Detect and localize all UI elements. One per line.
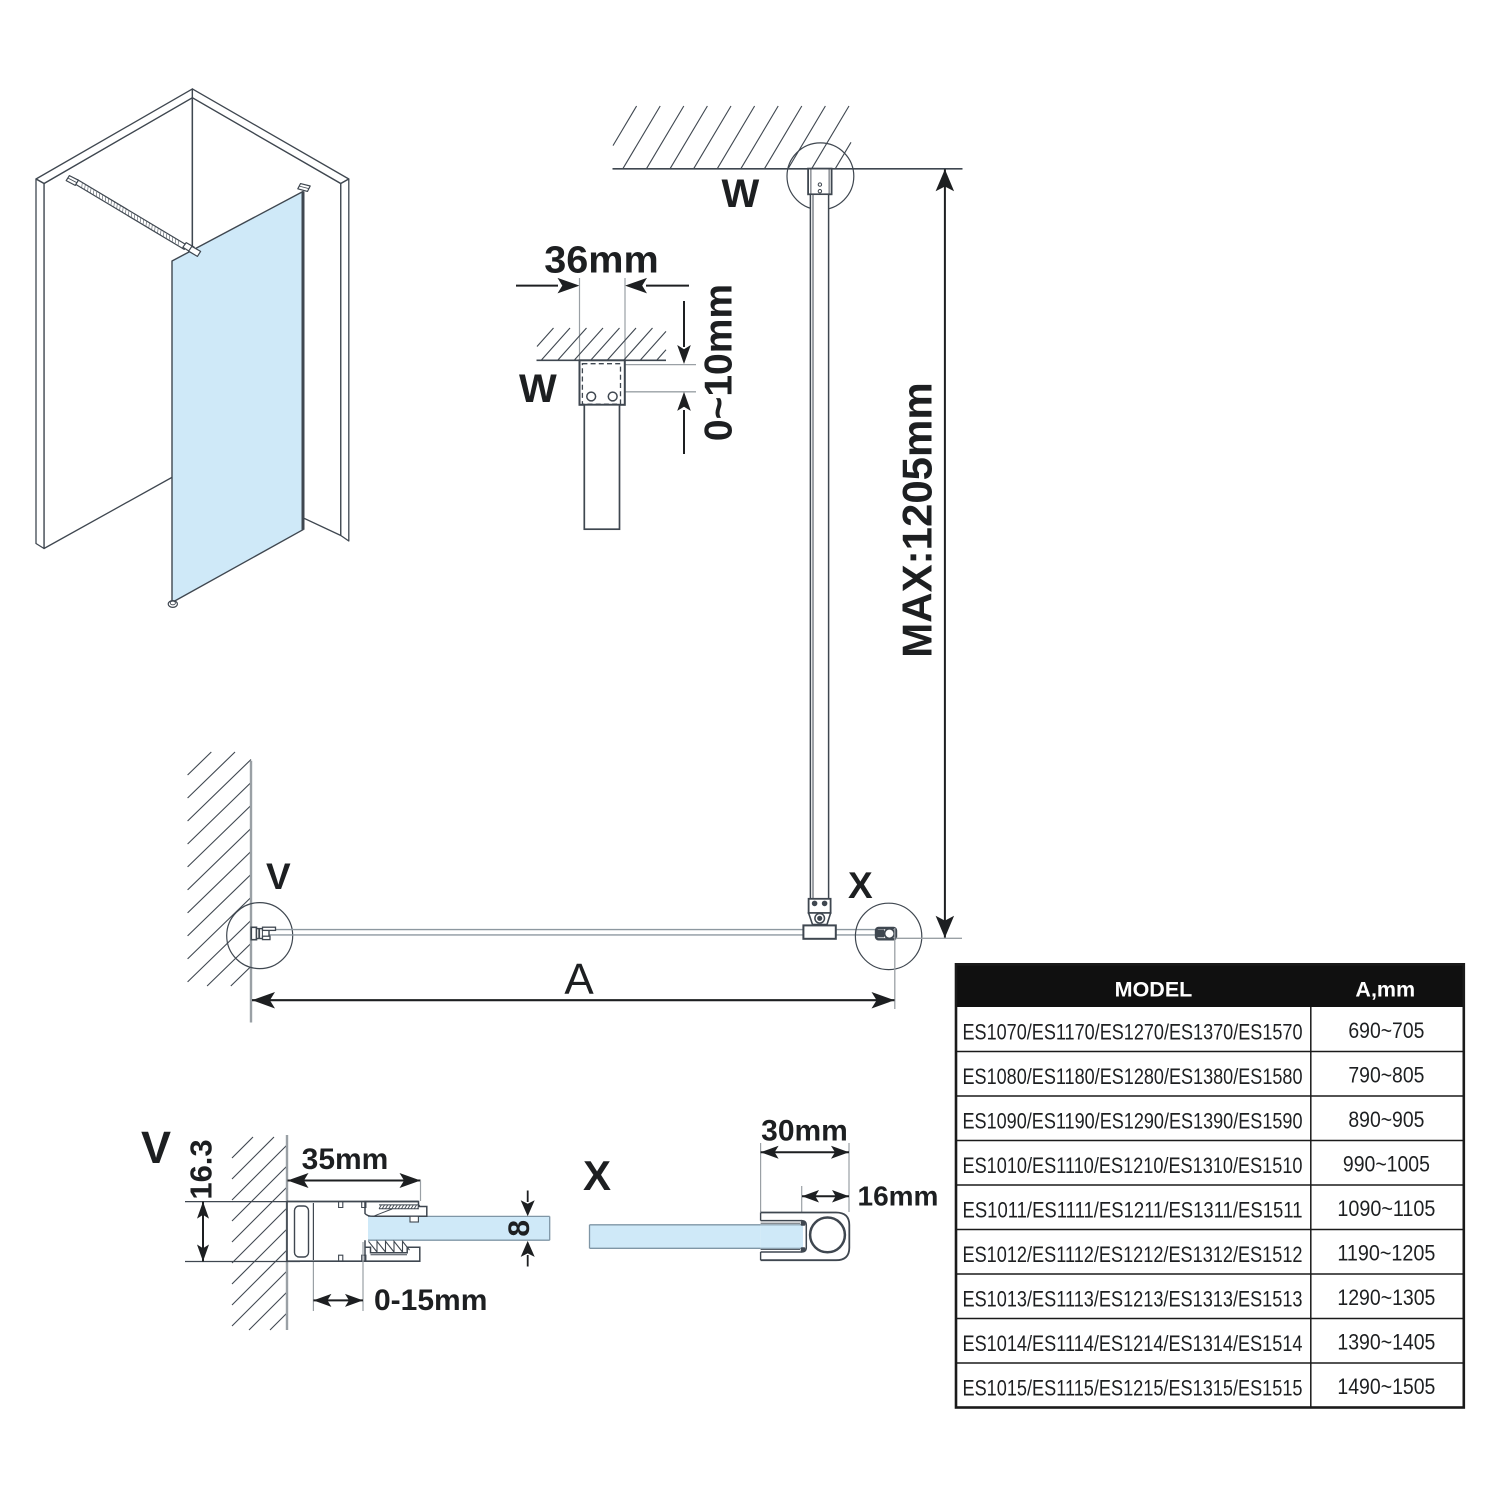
svg-text:1390~1405: 1390~1405: [1337, 1330, 1435, 1355]
svg-text:36mm: 36mm: [544, 240, 659, 282]
svg-text:MODEL: MODEL: [1115, 978, 1193, 1002]
svg-text:MAX:1205mm: MAX:1205mm: [894, 382, 941, 657]
svg-text:ES1012/ES1112/ES1212/ES1312/ES: ES1012/ES1112/ES1212/ES1312/ES1512: [963, 1242, 1303, 1267]
svg-text:0~10mm: 0~10mm: [698, 284, 741, 441]
svg-text:35mm: 35mm: [302, 1143, 389, 1176]
svg-text:V: V: [141, 1122, 171, 1173]
svg-text:1190~1205: 1190~1205: [1337, 1241, 1435, 1266]
svg-text:ES1080/ES1180/ES1280/ES1380/ES: ES1080/ES1180/ES1280/ES1380/ES1580: [963, 1064, 1303, 1089]
svg-text:1090~1105: 1090~1105: [1337, 1196, 1435, 1221]
svg-text:X: X: [848, 865, 873, 906]
svg-text:ES1010/ES1110/ES1210/ES1310/ES: ES1010/ES1110/ES1210/ES1310/ES1510: [963, 1153, 1303, 1178]
svg-text:16.3: 16.3: [184, 1139, 219, 1199]
svg-text:790~805: 790~805: [1348, 1063, 1424, 1088]
svg-text:1490~1505: 1490~1505: [1337, 1374, 1435, 1399]
svg-text:8: 8: [503, 1220, 536, 1237]
svg-text:A: A: [564, 955, 594, 1004]
svg-text:W: W: [519, 367, 557, 411]
svg-text:0-15mm: 0-15mm: [374, 1284, 487, 1317]
svg-text:A,mm: A,mm: [1355, 978, 1415, 1002]
svg-text:990~1005: 990~1005: [1343, 1152, 1430, 1177]
svg-text:1290~1305: 1290~1305: [1337, 1285, 1435, 1310]
svg-text:16mm: 16mm: [858, 1181, 939, 1212]
svg-text:ES1011/ES1111/ES1211/ES1311/ES: ES1011/ES1111/ES1211/ES1311/ES1511: [963, 1198, 1303, 1223]
svg-text:ES1090/ES1190/ES1290/ES1390/ES: ES1090/ES1190/ES1290/ES1390/ES1590: [963, 1109, 1303, 1134]
svg-text:ES1013/ES1113/ES1213/ES1313/ES: ES1013/ES1113/ES1213/ES1313/ES1513: [963, 1287, 1303, 1312]
svg-text:ES1015/ES1115/ES1215/ES1315/ES: ES1015/ES1115/ES1215/ES1315/ES1515: [963, 1376, 1303, 1401]
svg-text:690~705: 690~705: [1348, 1018, 1424, 1043]
svg-text:W: W: [722, 172, 760, 216]
svg-text:ES1014/ES1114/ES1214/ES1314/ES: ES1014/ES1114/ES1214/ES1314/ES1514: [963, 1331, 1303, 1356]
svg-text:V: V: [266, 856, 291, 897]
svg-text:30mm: 30mm: [761, 1115, 848, 1148]
svg-text:ES1070/ES1170/ES1270/ES1370/ES: ES1070/ES1170/ES1270/ES1370/ES1570: [963, 1020, 1303, 1045]
svg-text:890~905: 890~905: [1348, 1107, 1424, 1132]
svg-text:X: X: [583, 1152, 611, 1199]
